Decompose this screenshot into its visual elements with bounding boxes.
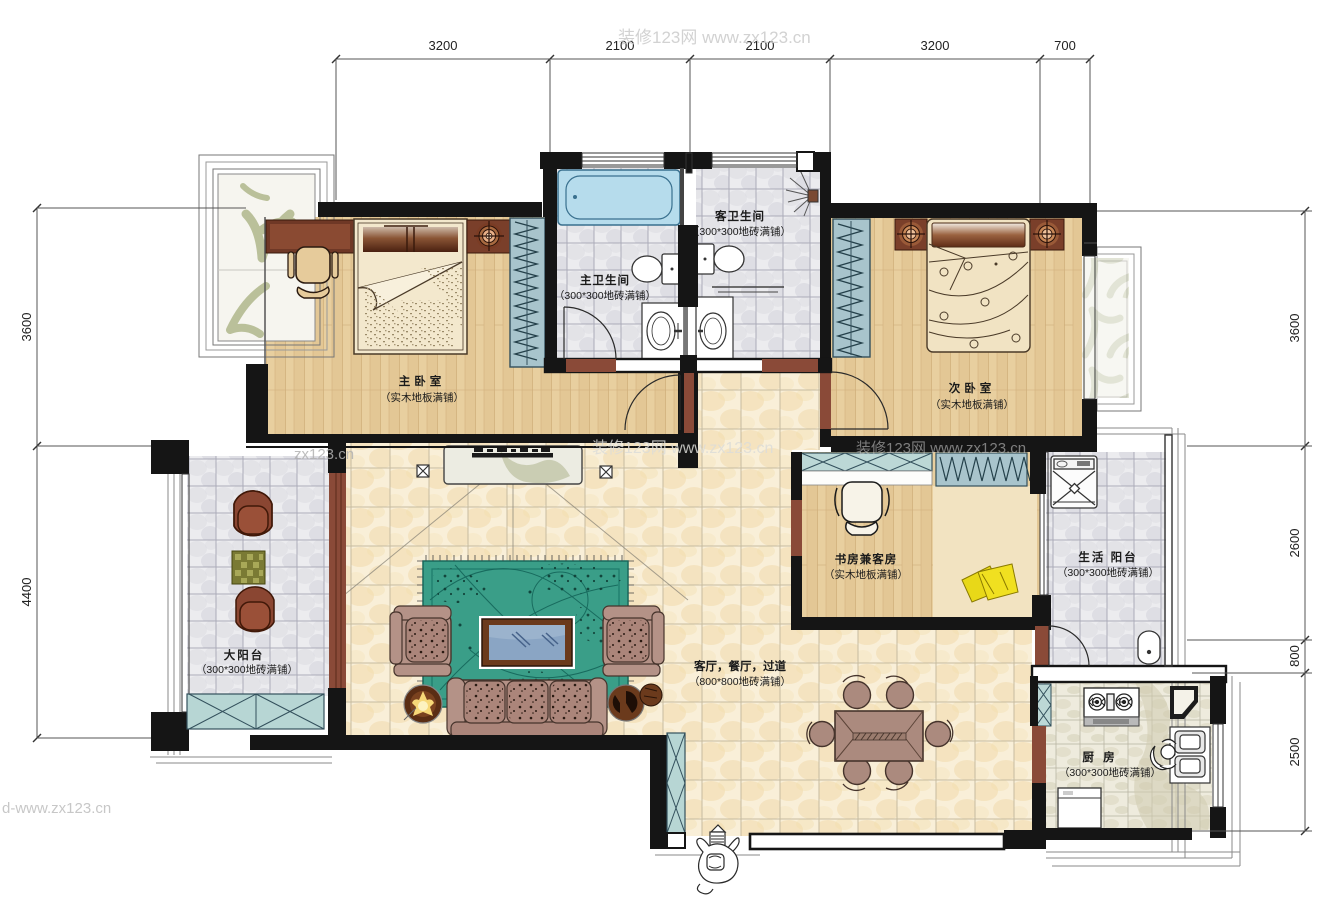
svg-text:700: 700 [1054,38,1076,53]
svg-text:（实木地板满铺）: （实木地板满铺） [380,391,464,404]
svg-text:（300*300地砖满铺）: （300*300地砖满铺） [689,225,791,238]
svg-text:3600: 3600 [19,313,34,342]
svg-text:3200: 3200 [921,38,950,53]
svg-text:（300*300地砖满铺）: （300*300地砖满铺） [1057,566,1159,579]
svg-text:2600: 2600 [1287,529,1302,558]
svg-text:（实木地板满铺）: （实木地板满铺） [930,398,1014,411]
svg-text:（800*800地砖满铺）: （800*800地砖满铺） [689,675,791,688]
svg-text:3600: 3600 [1287,314,1302,343]
svg-text:800: 800 [1287,645,1302,667]
svg-text:d-www.zx123.cn: d-www.zx123.cn [2,800,111,817]
svg-text:（实木地板满铺）: （实木地板满铺） [824,568,908,581]
svg-text:4400: 4400 [19,578,34,607]
svg-text:次卧室: 次卧室 [949,381,996,395]
svg-text:大阳台: 大阳台 [224,648,265,662]
svg-text:书房兼客房: 书房兼客房 [835,552,898,566]
svg-text:（300*300地砖满铺）: （300*300地砖满铺） [1059,766,1161,779]
svg-text:装修123网 www.zx123.cn: 装修123网 www.zx123.cn [618,28,811,47]
svg-text:厨 房: 厨 房 [1082,750,1117,764]
svg-text:zx123.cn: zx123.cn [294,446,354,463]
svg-text:装修123网 www.zx123.cn: 装修123网 www.zx123.cn [856,440,1026,457]
svg-text:（300*300地砖满铺）: （300*300地砖满铺） [554,289,656,302]
svg-text:主卧室: 主卧室 [399,374,446,388]
svg-text:（300*300地砖满铺）: （300*300地砖满铺） [196,663,298,676]
svg-text:生活 阳台: 生活 阳台 [1078,550,1137,564]
svg-text:客卫生间: 客卫生间 [714,209,765,223]
svg-text:3200: 3200 [429,38,458,53]
svg-text:主卫生间: 主卫生间 [580,273,630,287]
svg-text:客厅，餐厅，过道: 客厅，餐厅，过道 [693,659,786,673]
svg-text:装修123网 www.zx123.cn: 装修123网 www.zx123.cn [592,439,773,457]
svg-text:2500: 2500 [1287,738,1302,767]
